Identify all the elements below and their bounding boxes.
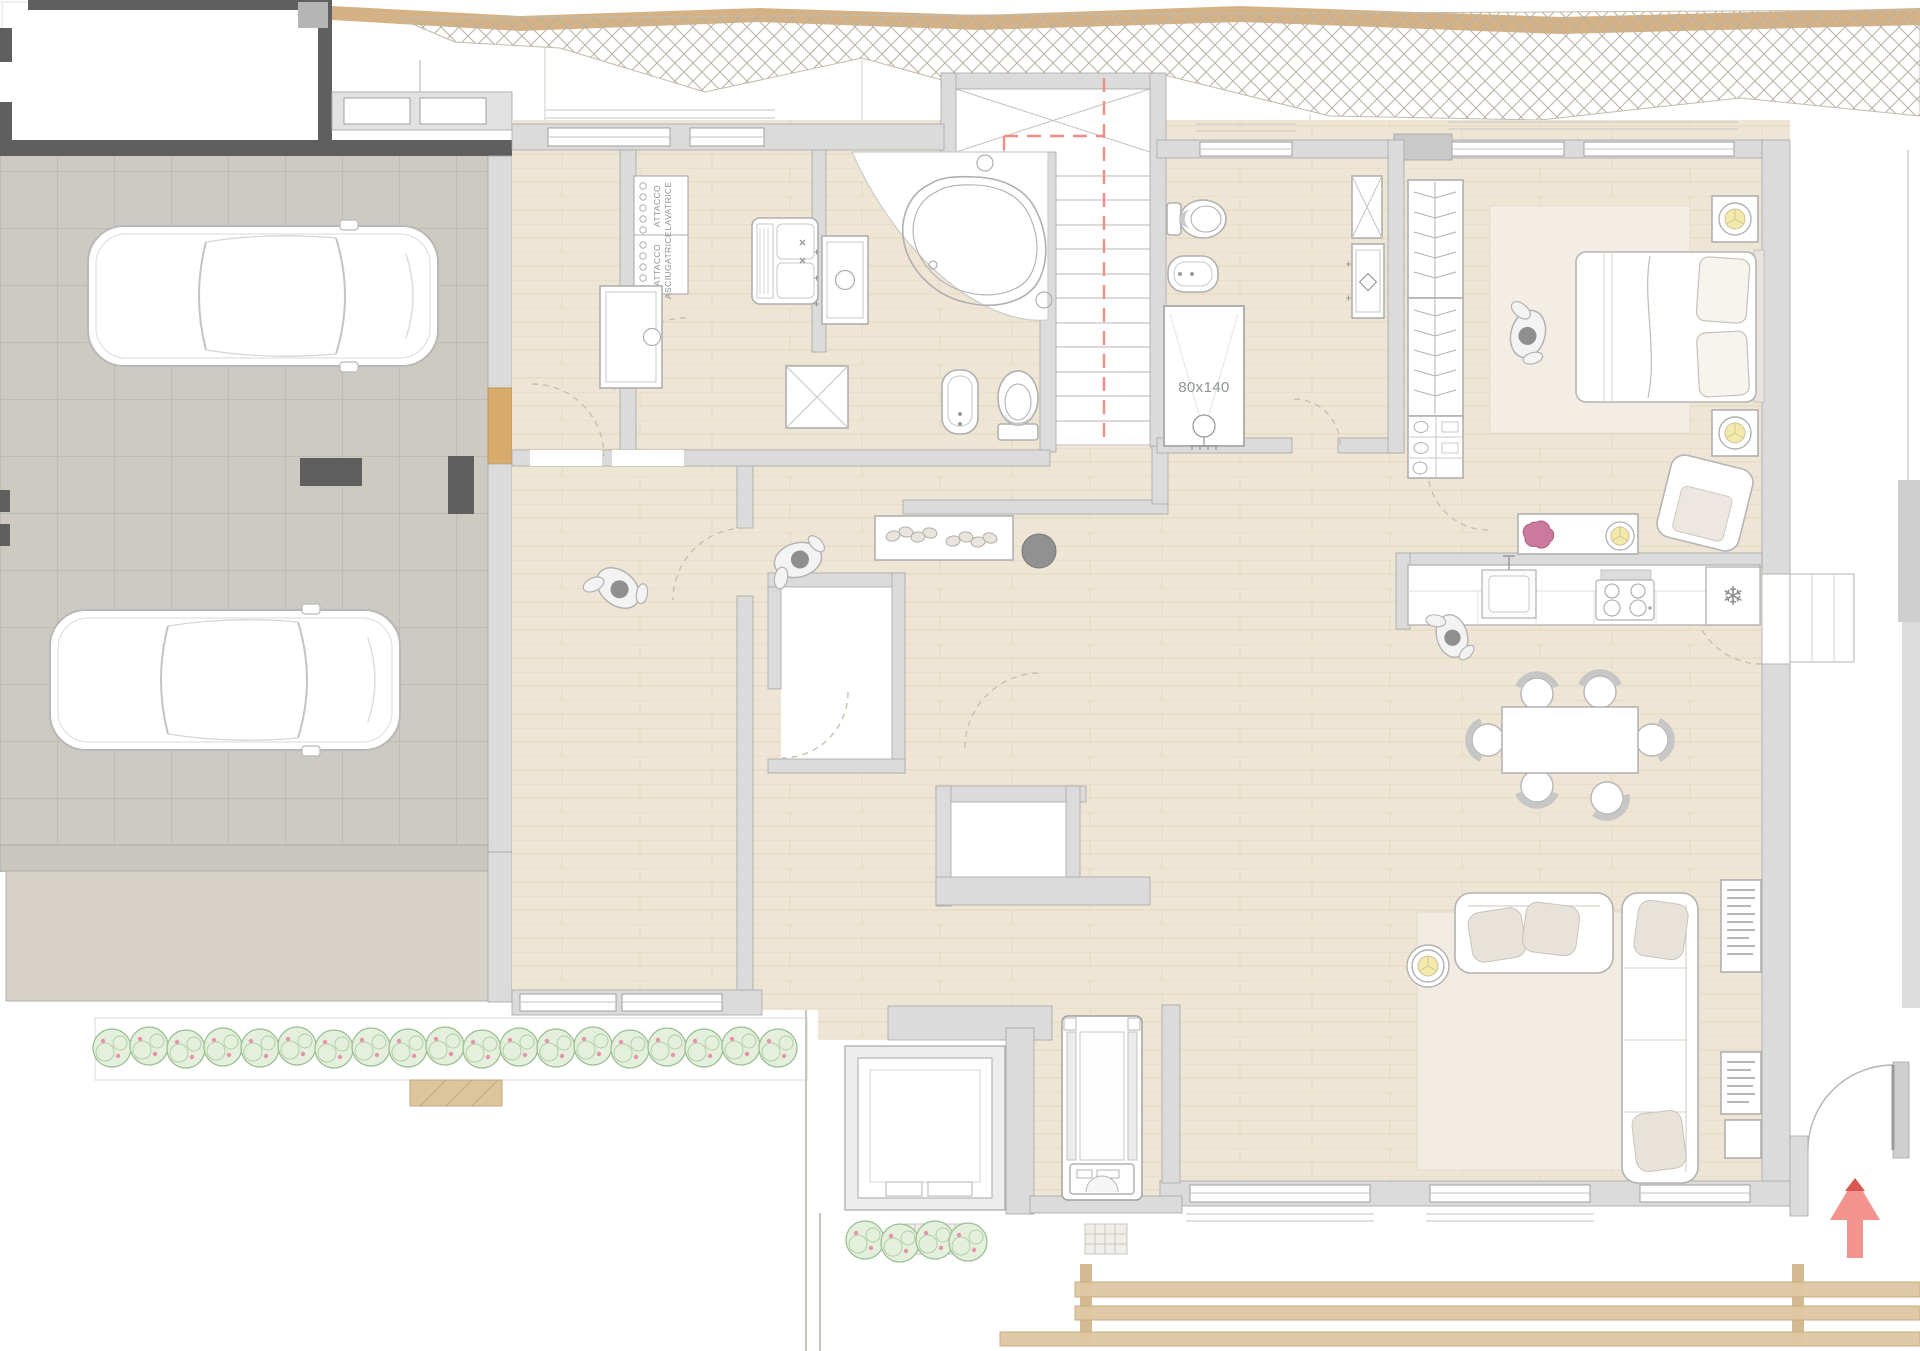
shower-80x140: 80x140	[1164, 306, 1244, 450]
nightstand	[1712, 196, 1758, 242]
console-table	[1518, 514, 1638, 554]
storage-cabinet	[600, 286, 662, 388]
cushion	[1521, 901, 1581, 957]
pillow	[1696, 331, 1749, 398]
nightstand-lamp	[1719, 203, 1751, 235]
car-top	[88, 220, 438, 372]
label-attacco-lavatrice-1: ATTACCO	[652, 185, 662, 227]
double-bed	[1576, 250, 1764, 402]
wood-patch	[410, 1080, 502, 1106]
cushion	[1466, 906, 1527, 964]
fridge-snowflake-icon: ❄	[1722, 581, 1744, 611]
dining-table	[1502, 707, 1638, 773]
sofa-horizontal	[1455, 893, 1613, 973]
pier-block	[300, 458, 362, 486]
label-attacco-asciugatrice-1: ATTACCO	[652, 244, 662, 286]
cooktop	[1596, 570, 1654, 620]
nightstand	[1712, 410, 1758, 456]
side-passage	[332, 60, 512, 130]
entry-door-arc	[1808, 1065, 1893, 1150]
garage-top-wall	[0, 140, 512, 156]
cushion	[1632, 899, 1689, 961]
shower-shaft	[786, 366, 848, 428]
label-asciugatrice: ASCIUGATRICE	[663, 231, 673, 299]
garage-bottom-wall	[0, 845, 488, 871]
shower-size-label: 80x140	[1178, 379, 1230, 396]
garage	[0, 140, 512, 872]
shoe-shelf	[1408, 416, 1463, 478]
bidet-icon	[942, 370, 978, 434]
cushion	[1631, 1109, 1688, 1173]
car-bottom	[50, 604, 400, 756]
sofa-vertical	[1622, 893, 1698, 1183]
garage-right-wall	[488, 156, 512, 388]
round-side-table	[1407, 945, 1449, 987]
toilet-icon	[998, 371, 1038, 440]
stairwell-top-wall	[941, 73, 1157, 89]
entry-arrow	[1830, 1178, 1880, 1258]
shoe-sideboard	[875, 516, 1013, 560]
exercise-machine	[845, 1046, 1005, 1210]
label-lavatrice: LAVATRICE	[663, 182, 673, 231]
bidet-icon	[1168, 256, 1218, 292]
refrigerator: ❄	[1706, 567, 1760, 625]
pillow	[1696, 256, 1750, 323]
storage-room	[768, 573, 905, 773]
table-lamp	[1412, 950, 1444, 982]
wardrobe	[1408, 180, 1463, 478]
pier-block	[448, 456, 474, 514]
floor-plan-drawing: ATTACCO LAVATRICE ATTACCO ASCIUGATRICE	[0, 0, 1920, 1351]
patio-slab	[6, 871, 506, 1001]
washer-dryer-connection-panel: ATTACCO LAVATRICE ATTACCO ASCIUGATRICE	[634, 176, 688, 299]
door-threshold-wood	[488, 388, 512, 464]
vanity-sink	[814, 236, 868, 324]
dark-wall	[28, 0, 332, 10]
east-wall	[1762, 140, 1790, 1206]
wash-basin	[1346, 244, 1384, 318]
duct-shaft	[1352, 176, 1382, 238]
nightstand-lamp	[1719, 417, 1751, 449]
side-table	[1725, 1120, 1761, 1158]
main-entrance	[1790, 1062, 1909, 1258]
toilet-icon	[1167, 200, 1226, 238]
utility-sink	[752, 218, 818, 304]
wood-deck	[1000, 1264, 1920, 1346]
kitchen: ❄	[1408, 556, 1760, 625]
entry-step	[1790, 574, 1854, 662]
treadmill	[1062, 1016, 1142, 1200]
pouf	[1022, 534, 1056, 568]
floor-plan-page: ATTACCO LAVATRICE ATTACCO ASCIUGATRICE	[0, 0, 1920, 1351]
